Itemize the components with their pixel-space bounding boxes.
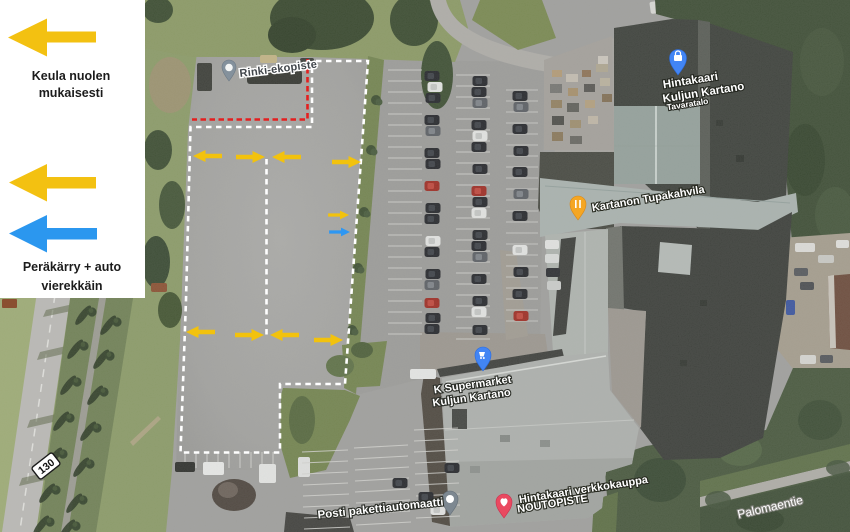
svg-text:Peräkärry + auto: Peräkärry + auto [23,260,122,274]
svg-text:Keula nuolen: Keula nuolen [32,69,110,83]
svg-text:vierekkäin: vierekkäin [41,279,102,293]
svg-text:mukaisesti: mukaisesti [39,86,104,100]
